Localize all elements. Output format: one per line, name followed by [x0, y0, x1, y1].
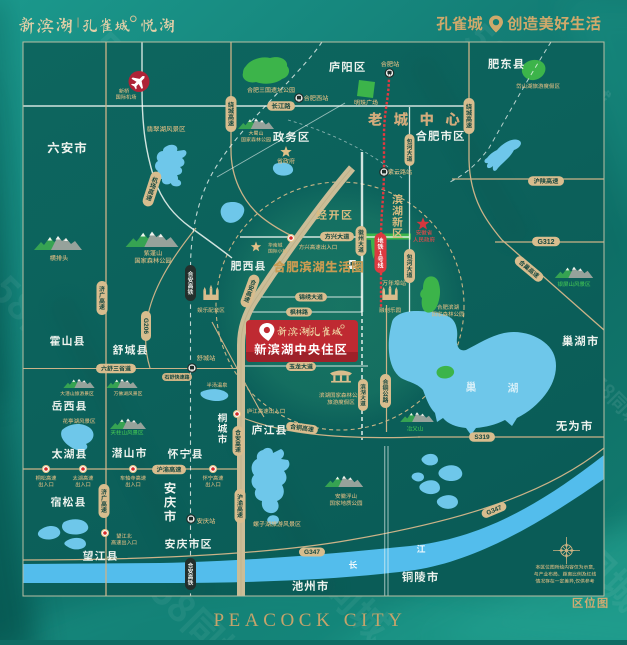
svg-text:S319: S319 — [474, 434, 490, 441]
svg-text:PEACOCK CITY: PEACOCK CITY — [214, 610, 407, 631]
svg-text:G206: G206 — [142, 318, 149, 334]
svg-text:G312: G312 — [537, 239, 554, 246]
svg-text:G347: G347 — [304, 549, 320, 556]
